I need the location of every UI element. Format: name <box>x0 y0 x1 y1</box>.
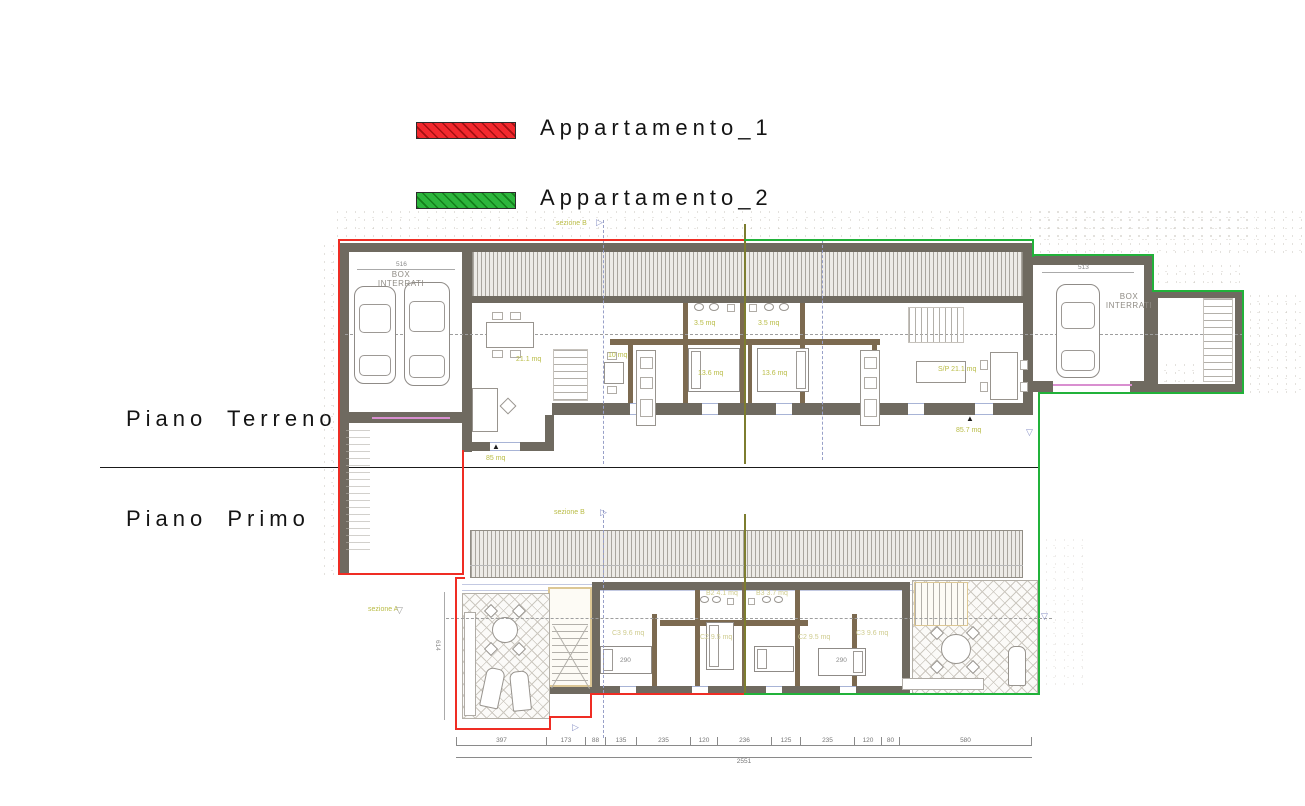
dim-segment: 173 <box>547 737 586 745</box>
section-line-b <box>603 510 604 738</box>
room-area-label: 3.5 mq <box>694 320 715 327</box>
washbasin <box>709 303 719 311</box>
apartment1-outline <box>462 450 464 575</box>
dim-segment: 235 <box>637 737 691 745</box>
dim-segment: 120 <box>855 737 882 745</box>
garage-door-line <box>372 417 450 419</box>
washbasin <box>762 596 771 603</box>
apartment1-outline <box>549 716 592 718</box>
washbasin <box>694 303 704 311</box>
apartment2-outline <box>744 693 1040 695</box>
toilet <box>748 598 755 605</box>
dimension-line <box>470 565 1023 566</box>
legend-swatch-apartment2 <box>416 192 516 209</box>
appliance <box>640 377 653 389</box>
wall <box>545 415 554 444</box>
dimension-text: 290 <box>620 657 631 664</box>
room-area-label: C3 9.6 mq <box>856 630 888 637</box>
small-table <box>604 362 624 384</box>
section-label: sezione A <box>368 606 398 613</box>
wall <box>1032 256 1152 265</box>
ground-texture <box>1154 262 1242 288</box>
room-area-label: 13.6 mq <box>698 370 723 377</box>
apartment2-outline <box>744 239 1034 241</box>
apartment2-outline <box>1152 254 1154 292</box>
ground-texture <box>320 242 338 578</box>
dim-segment: 135 <box>606 737 637 745</box>
chair <box>980 360 988 370</box>
room-area-label: C2 9.5 mq <box>798 634 830 641</box>
dimension-total: 2551 <box>456 757 1032 765</box>
dim-segment: 397 <box>456 737 547 745</box>
apartment2-outline <box>1038 392 1244 394</box>
car-top-view <box>1056 284 1100 378</box>
apartment1-outline <box>455 728 551 730</box>
apartment1-outline <box>338 573 464 575</box>
toilet <box>749 304 757 312</box>
floor-plan-sheet: Appartamento_1 Appartamento_2 Piano Terr… <box>0 0 1305 806</box>
toilet <box>727 304 735 312</box>
car-top-view <box>404 282 450 386</box>
appliance <box>640 399 653 417</box>
total-area-label: 85 mq <box>486 455 505 462</box>
section-arrow-icon: ▽ <box>1041 612 1048 621</box>
garage-left-label: BOX INTERRATI <box>370 270 432 288</box>
wall <box>472 296 1023 303</box>
ground-texture <box>1042 536 1086 688</box>
center-axis-line <box>446 618 1052 619</box>
external-staircase <box>914 582 968 626</box>
dim-segment: 236 <box>718 737 772 745</box>
apartment2-outline <box>1242 290 1244 394</box>
section-arrow-icon: ▷ <box>572 723 579 732</box>
apartment1-outline <box>338 239 746 241</box>
center-axis-line <box>345 334 1243 335</box>
section-arrow-icon: ▽ <box>396 606 403 615</box>
wall <box>1130 381 1152 392</box>
partition-wall <box>652 614 657 686</box>
dimension-line <box>357 269 455 270</box>
dim-segment: 120 <box>691 737 718 745</box>
chair <box>1020 360 1028 370</box>
chair <box>510 312 521 320</box>
section-line <box>822 240 823 460</box>
apartment2-outline <box>1038 392 1040 695</box>
washbasin <box>779 303 789 311</box>
chair <box>607 386 617 394</box>
chair <box>980 382 988 392</box>
round-table <box>941 634 971 664</box>
window <box>975 403 993 415</box>
washbasin <box>774 596 783 603</box>
floor-divider-line <box>100 467 1038 468</box>
washbasin <box>700 596 709 603</box>
total-area-label: 85.7 mq <box>956 427 981 434</box>
apartment1-outline <box>590 693 746 695</box>
kitchen-unit <box>860 350 880 426</box>
dimension-line <box>444 592 445 720</box>
appliance <box>864 399 877 417</box>
room-area-label: B2 4.1 mq <box>706 590 738 597</box>
chair <box>492 312 503 320</box>
external-staircase <box>1203 298 1233 382</box>
ground-texture <box>1246 292 1302 394</box>
dimension-text: 513 <box>1078 264 1089 271</box>
bed <box>754 646 794 672</box>
partition-wall <box>803 339 880 345</box>
appliance <box>640 357 653 369</box>
room-area-label: C3 9.6 mq <box>612 630 644 637</box>
garage-door-line <box>1053 384 1132 386</box>
washbasin <box>764 303 774 311</box>
apartment-divider-line <box>744 514 746 695</box>
planter <box>902 678 984 690</box>
section-arrow-icon: ▷ <box>596 218 603 227</box>
planter <box>464 612 476 716</box>
section-label: sezione B <box>554 509 585 516</box>
dining-table <box>486 322 534 348</box>
toilet <box>727 598 734 605</box>
first-floor-title: Piano Primo <box>126 506 310 532</box>
wall <box>592 582 600 692</box>
wall <box>1150 384 1243 392</box>
dimension-text: 290 <box>836 657 847 664</box>
legend-swatch-apartment1 <box>416 122 516 139</box>
bed <box>706 622 734 670</box>
apartment1-outline <box>455 577 457 730</box>
window <box>908 403 924 415</box>
dim-segment: 80 <box>882 737 900 745</box>
section-line-b <box>603 220 604 464</box>
partition-wall <box>748 345 752 403</box>
appliance <box>864 357 877 369</box>
staircase <box>553 349 588 401</box>
wall <box>339 243 1034 252</box>
apartment1-outline <box>590 693 592 718</box>
dim-segment: 125 <box>772 737 801 745</box>
sun-lounger <box>509 670 532 712</box>
north-arrow-icon: ▲ <box>966 415 974 423</box>
north-arrow-icon: ▲ <box>492 443 500 451</box>
partition-wall <box>628 345 633 403</box>
room-area-label: 10 mq <box>608 352 627 359</box>
appliance <box>864 377 877 389</box>
garage-right-label: BOX INTERRATI <box>1098 292 1160 310</box>
car-top-view <box>354 286 396 384</box>
garage-label-line2: INTERRATI <box>1106 301 1152 310</box>
washbasin <box>712 596 721 603</box>
window <box>776 403 792 415</box>
wall <box>592 582 910 590</box>
chair <box>500 398 517 415</box>
section-label: sezione B <box>556 220 587 227</box>
room-area-label: B3 3.7 mq <box>756 590 788 597</box>
room-area-label: 13.6 mq <box>762 370 787 377</box>
roof-hatch-first <box>470 530 1023 578</box>
dim-segment: 580 <box>900 737 1032 745</box>
round-table <box>492 617 518 643</box>
sun-lounger <box>1008 646 1026 686</box>
partition-wall <box>610 339 687 345</box>
desk <box>472 388 498 432</box>
apartment-divider-line <box>744 224 746 464</box>
dim-segment: 88 <box>586 737 606 745</box>
dimension-line <box>1042 272 1134 273</box>
chair <box>1020 382 1028 392</box>
apartment1-outline <box>338 239 340 575</box>
section-arrow-icon: ▽ <box>1026 428 1033 437</box>
room-area-label: S/P 21.1 mq <box>938 366 976 373</box>
dimension-text: 614 <box>434 640 441 651</box>
apartment2-outline <box>1152 290 1244 292</box>
staircase <box>908 307 964 343</box>
section-arrow-icon: ▷ <box>600 508 607 517</box>
landing-texture <box>1153 361 1201 383</box>
garage-label-line1: BOX <box>1120 292 1138 301</box>
apartment1-outline <box>549 716 551 730</box>
kitchen-unit <box>636 350 656 426</box>
roof-hatch-ground <box>472 252 1023 298</box>
room-area-label: C2 9.5 mq <box>700 634 732 641</box>
room-area-label: 3.5 mq <box>758 320 779 327</box>
apartment2-outline <box>1032 254 1154 256</box>
window <box>702 403 718 415</box>
dimension-text: 516 <box>396 261 407 268</box>
dining-table <box>990 352 1018 400</box>
wall <box>462 243 472 452</box>
ground-floor-title: Piano Terreno <box>126 406 337 432</box>
legend-label-apartment1: Appartamento_1 <box>540 115 773 141</box>
garage-label-line2: INTERRATI <box>378 279 424 288</box>
dim-segment: 235 <box>801 737 855 745</box>
ground-texture <box>1036 208 1302 254</box>
chair <box>492 350 503 358</box>
garage-label-line1: BOX <box>392 270 410 279</box>
partition-wall <box>660 620 808 626</box>
ramp-stairs <box>346 430 370 552</box>
room-area-label: 21.1 mq <box>516 356 541 363</box>
dimension-row: 397 173 88 135 235 120 236 125 235 120 8… <box>456 737 1032 746</box>
